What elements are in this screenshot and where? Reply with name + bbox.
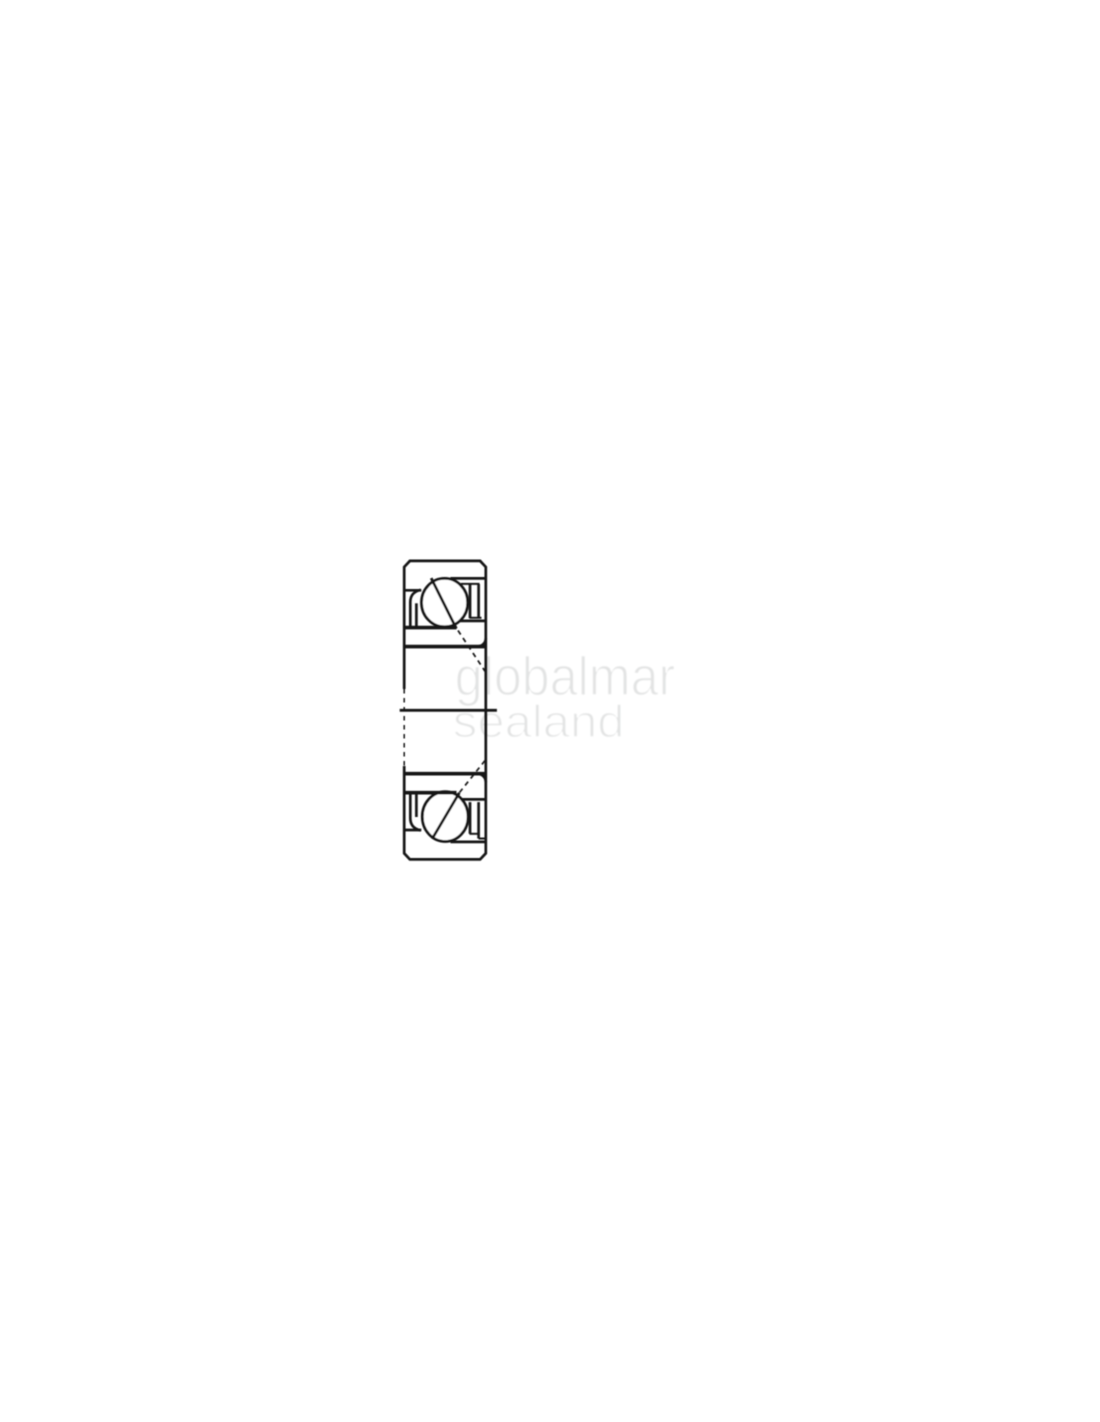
svg-text:sealand: sealand [453, 696, 625, 747]
